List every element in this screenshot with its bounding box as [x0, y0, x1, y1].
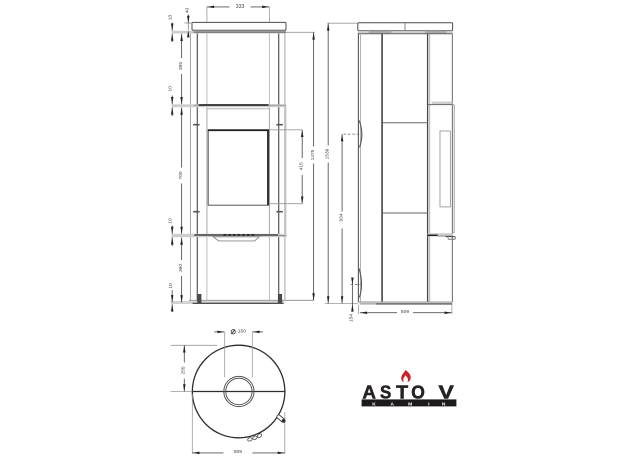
svg-text:10: 10 [167, 218, 173, 224]
svg-text:150: 150 [238, 329, 246, 335]
svg-text:10: 10 [167, 86, 173, 92]
svg-text:S: S [380, 381, 391, 402]
svg-text:415: 415 [299, 162, 305, 170]
svg-text:N: N [442, 401, 446, 407]
svg-text:333: 333 [236, 4, 245, 10]
svg-text:M: M [408, 401, 412, 407]
svg-text:T: T [396, 381, 409, 402]
svg-text:509: 509 [401, 309, 409, 315]
svg-text:O: O [411, 381, 425, 402]
svg-text:A: A [362, 381, 376, 402]
svg-text:255: 255 [181, 366, 187, 374]
svg-text:360: 360 [178, 264, 184, 272]
svg-text:10: 10 [168, 283, 174, 289]
svg-text:V: V [439, 381, 455, 402]
svg-text:154: 154 [349, 314, 355, 322]
svg-text:1475: 1475 [310, 149, 316, 160]
svg-text:395: 395 [178, 62, 184, 70]
svg-text:700: 700 [178, 171, 184, 179]
svg-text:K: K [372, 401, 376, 407]
svg-text:509: 509 [234, 449, 242, 455]
svg-text:A: A [390, 401, 394, 407]
svg-text:10: 10 [167, 15, 173, 21]
svg-text:1539: 1539 [325, 148, 331, 159]
svg-text:40: 40 [185, 8, 191, 14]
svg-text:934: 934 [338, 213, 344, 221]
